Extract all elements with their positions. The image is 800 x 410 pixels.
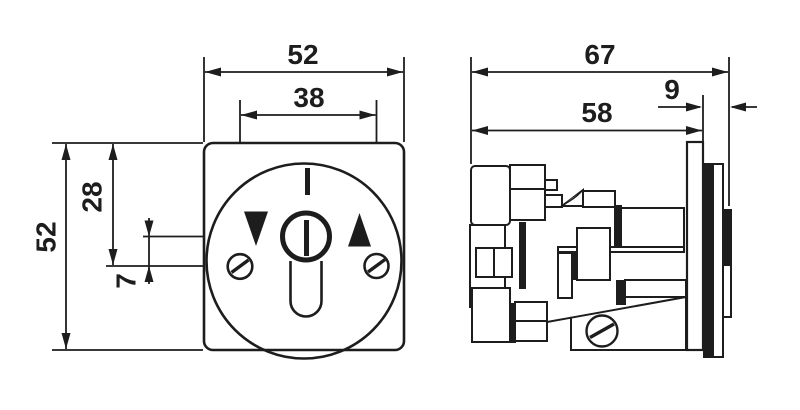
body-block bbox=[621, 208, 684, 247]
gasket-layer bbox=[704, 164, 713, 357]
body-block bbox=[510, 165, 545, 190]
dim-text-38: 38 bbox=[293, 82, 324, 113]
screw-left bbox=[228, 254, 253, 279]
body-bar bbox=[625, 280, 686, 297]
screw-side bbox=[587, 316, 618, 347]
body-block bbox=[510, 189, 545, 220]
body-block bbox=[471, 166, 510, 225]
cover-plate-layer bbox=[713, 164, 723, 357]
joint-black bbox=[520, 223, 525, 288]
dim-text-28: 28 bbox=[77, 181, 108, 212]
technical-drawing-key-switch: 52 38 52 28 7 bbox=[0, 0, 800, 410]
front-tip-black bbox=[725, 210, 731, 265]
dim-text-67: 67 bbox=[584, 39, 615, 70]
body-tab bbox=[545, 180, 557, 190]
mounting-plate bbox=[687, 142, 703, 350]
body-block bbox=[472, 288, 510, 342]
side-view: 67 58 9 bbox=[470, 39, 757, 357]
key-slot-stem bbox=[291, 261, 322, 316]
body-block bbox=[515, 321, 547, 341]
dim-text-width-52: 52 bbox=[287, 39, 318, 70]
terminal-block bbox=[476, 248, 494, 277]
dim-text-58: 58 bbox=[581, 97, 612, 128]
terminal-block bbox=[494, 248, 512, 277]
screw-right bbox=[365, 254, 389, 278]
dim-text-7: 7 bbox=[111, 273, 142, 289]
dim-text-9: 9 bbox=[664, 74, 680, 105]
body-block bbox=[583, 191, 615, 207]
body-block bbox=[558, 253, 572, 298]
switch-body bbox=[470, 142, 731, 357]
body-block bbox=[515, 302, 547, 321]
slant-line bbox=[547, 318, 571, 322]
body-block-center bbox=[577, 228, 610, 280]
dim-text-height-52: 52 bbox=[31, 221, 62, 252]
joint-black bbox=[617, 281, 625, 304]
body-tab bbox=[545, 195, 562, 207]
joint-black bbox=[572, 253, 577, 277]
front-view: 52 38 52 28 7 bbox=[31, 39, 405, 359]
